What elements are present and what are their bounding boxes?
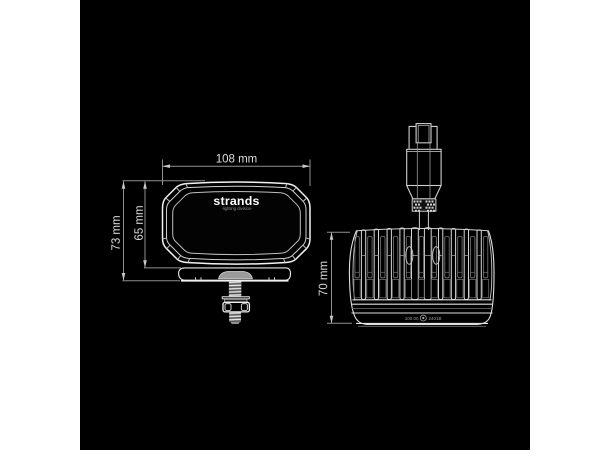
svg-text:108 mm: 108 mm (216, 154, 258, 166)
svg-text:70 mm: 70 mm (318, 261, 330, 296)
svg-text:100.00: 100.00 (405, 316, 419, 321)
svg-text:-lighting division-: -lighting division- (221, 206, 253, 211)
svg-text:2401B: 2401B (429, 316, 442, 321)
svg-text:73 mm: 73 mm (111, 215, 123, 250)
svg-text:65 mm: 65 mm (134, 205, 146, 240)
